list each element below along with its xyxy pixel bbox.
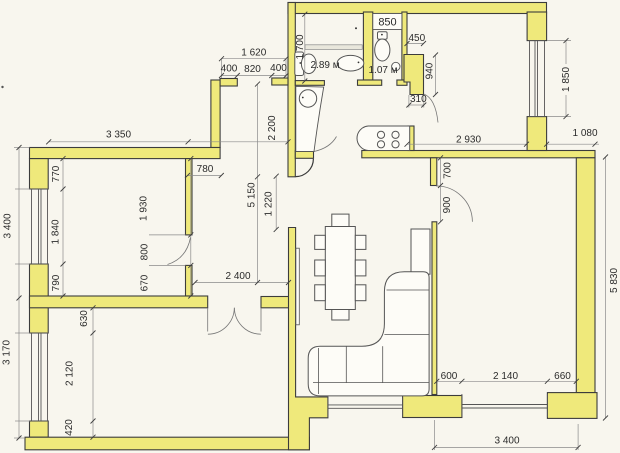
svg-text:900: 900 <box>442 196 453 213</box>
svg-text:2 930: 2 930 <box>456 135 481 146</box>
svg-text:940: 940 <box>425 62 436 79</box>
svg-text:700: 700 <box>443 162 454 179</box>
svg-text:600: 600 <box>441 371 458 382</box>
svg-text:400: 400 <box>221 64 238 75</box>
svg-text:3 400: 3 400 <box>494 436 519 447</box>
svg-text:1 840: 1 840 <box>51 219 62 244</box>
svg-text:1 850: 1 850 <box>561 67 572 92</box>
svg-text:630: 630 <box>79 310 90 327</box>
svg-text:420: 420 <box>64 419 75 436</box>
svg-text:3 400: 3 400 <box>3 213 14 238</box>
svg-text:2 140: 2 140 <box>493 371 518 382</box>
svg-text:800: 800 <box>140 243 151 260</box>
svg-text:670: 670 <box>140 274 151 291</box>
svg-text:2.89 м: 2.89 м <box>311 60 340 71</box>
svg-text:2 200: 2 200 <box>267 115 278 140</box>
svg-text:450: 450 <box>409 33 426 44</box>
svg-text:1 080: 1 080 <box>572 128 597 139</box>
svg-text:3 350: 3 350 <box>106 130 131 141</box>
svg-text:5 150: 5 150 <box>247 182 258 207</box>
svg-text:1 700: 1 700 <box>295 34 306 59</box>
svg-text:1 220: 1 220 <box>263 191 274 216</box>
svg-text:1.07 м: 1.07 м <box>369 65 398 76</box>
svg-text:2 120: 2 120 <box>65 361 76 386</box>
svg-text:2 400: 2 400 <box>225 271 250 282</box>
svg-text:5 830: 5 830 <box>609 268 620 293</box>
svg-text:850: 850 <box>378 17 396 29</box>
svg-text:3 170: 3 170 <box>2 340 13 365</box>
svg-text:1 930: 1 930 <box>139 196 150 221</box>
svg-text:1 620: 1 620 <box>241 48 266 59</box>
svg-text:310: 310 <box>410 94 427 105</box>
svg-text:780: 780 <box>197 164 214 175</box>
svg-text:660: 660 <box>554 371 571 382</box>
svg-text:820: 820 <box>244 64 261 75</box>
svg-text:770: 770 <box>51 165 62 182</box>
svg-text:790: 790 <box>51 274 62 291</box>
svg-text:400: 400 <box>270 63 287 74</box>
